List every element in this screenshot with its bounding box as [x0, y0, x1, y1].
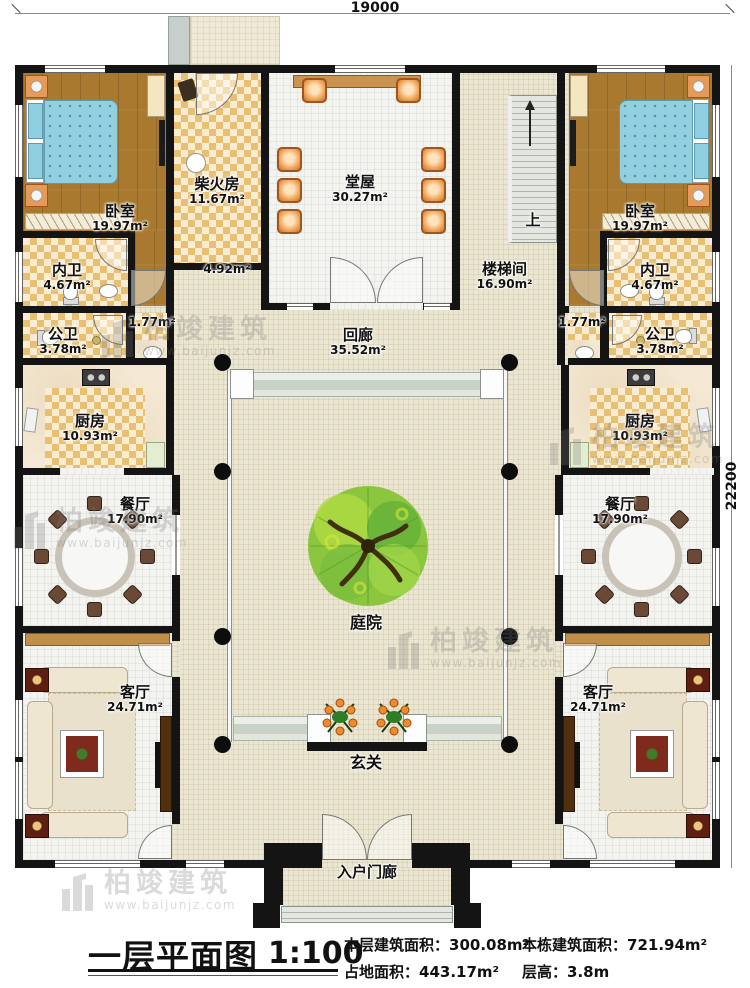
dining-chair [34, 549, 49, 564]
room-label-courtyard: 庭院 [330, 614, 402, 632]
wall [261, 65, 269, 310]
column [214, 628, 231, 645]
door-opening [330, 303, 423, 310]
entrance-steps [281, 906, 453, 923]
chimney [168, 16, 190, 65]
end-table [686, 668, 710, 692]
column [214, 354, 231, 371]
hall-chair [277, 209, 302, 234]
room-label-wash-left: 1.77m² [122, 316, 182, 329]
room-label-foyer: 玄关 [330, 754, 402, 772]
courtyard-planter-top [233, 372, 501, 397]
stat-storey-height: 层高：3.8m [522, 961, 609, 982]
sliding-door [555, 515, 563, 575]
window [335, 65, 405, 73]
column [214, 463, 231, 480]
window [712, 388, 720, 446]
dining-chair [687, 549, 702, 564]
room-label-firewood: 柴火房11.67m² [172, 176, 262, 206]
wall [23, 358, 167, 365]
room-label-public-bath-left: 公卫3.78m² [28, 326, 98, 356]
stat-building-area: 本栋建筑面积：721.94m² [522, 934, 707, 955]
end-table [686, 814, 710, 838]
courtyard-post [480, 369, 504, 399]
room-label-corridor: 回廊35.52m² [320, 327, 396, 357]
room-label-inner-bath-right: 内卫4.67m² [620, 262, 690, 292]
room-label-dining-left: 餐厅17.90m² [100, 496, 170, 526]
window [15, 388, 23, 446]
window [712, 762, 720, 819]
fridge [146, 442, 165, 468]
sofa [607, 812, 695, 838]
hall-chair [421, 209, 446, 234]
courtyard-tree [302, 480, 434, 612]
room-label-dining-right: 餐厅17.90m² [585, 496, 655, 526]
hall-chair [421, 178, 446, 203]
fridge [570, 442, 589, 468]
wall [568, 358, 712, 365]
tv [159, 120, 165, 166]
room-label-inner-bath-left: 内卫4.67m² [32, 262, 102, 292]
dimension-top-value: 19000 [340, 0, 410, 16]
potted-plant [322, 696, 358, 738]
window [287, 303, 313, 310]
end-table [25, 814, 49, 838]
room-label-living-left: 客厅24.71m² [100, 684, 170, 714]
room-label-passage: 4.92m² [192, 263, 262, 276]
tv [575, 742, 580, 788]
pillow [28, 143, 43, 179]
watermark-logo-icon [60, 871, 96, 913]
door-opening [555, 824, 563, 860]
stove [82, 369, 110, 386]
stat-footprint-area: 占地面积：443.17m² [344, 961, 499, 982]
dining-chair [634, 602, 649, 617]
window [45, 65, 105, 73]
window [15, 700, 23, 757]
pillow [28, 103, 43, 139]
step-pier [454, 903, 481, 928]
dining-table [602, 517, 682, 597]
wall [23, 626, 178, 633]
room-label-bedroom-right: 卧室19.97m² [600, 203, 680, 233]
wall [557, 626, 712, 633]
door-opening [172, 641, 180, 677]
room-label-kitchen-right: 厨房10.93m² [605, 413, 675, 443]
sofa [682, 701, 708, 809]
coffee-table-top [636, 736, 668, 772]
dimension-tick [725, 4, 734, 13]
window [55, 860, 140, 868]
courtyard-post [230, 369, 254, 399]
window [590, 860, 675, 868]
outdoor-pad [190, 16, 280, 65]
title-underline [88, 969, 338, 972]
door-opening [60, 468, 124, 475]
window [424, 303, 450, 310]
stairs-direction-arrow [522, 98, 538, 148]
window [712, 700, 720, 757]
sofa [27, 701, 53, 809]
watermark: 柏竣建筑www.baijunjz.com [60, 870, 236, 914]
pillow [694, 143, 709, 179]
room-label-bedroom-left: 卧室19.97m² [80, 203, 160, 233]
title-underline-thin [88, 975, 338, 976]
door-opening [135, 306, 166, 313]
window [597, 65, 665, 73]
room-label-living-right: 客厅24.71m² [563, 684, 633, 714]
pillow [694, 103, 709, 139]
room-label-kitchen-left: 厨房10.93m² [55, 413, 125, 443]
dining-table [55, 517, 135, 597]
foyer-threshold [307, 742, 427, 751]
tv [155, 742, 160, 788]
window [15, 762, 23, 819]
nightstand [25, 75, 48, 98]
stove [627, 369, 655, 386]
room-label-public-bath-right: 公卫3.78m² [625, 326, 695, 356]
column [501, 463, 518, 480]
tv [570, 120, 576, 166]
tv-cabinet [160, 716, 172, 812]
window [15, 105, 23, 177]
hall-chair [302, 78, 327, 103]
hall-chair [421, 147, 446, 172]
courtyard-rail-left [227, 370, 232, 742]
window [15, 548, 23, 606]
column [501, 354, 518, 371]
mattress [619, 100, 693, 184]
end-table [25, 668, 49, 692]
window [712, 548, 720, 606]
hall-chair [396, 78, 421, 103]
dimension-right-value: 22200 [724, 456, 740, 516]
column [214, 736, 231, 753]
nightstand [25, 184, 48, 207]
window [712, 105, 720, 177]
courtyard-rail-right [503, 370, 508, 742]
stat-floor-area: 本层建筑面积：300.08m² [344, 934, 529, 955]
floor-plan: 19000 22200 [0, 0, 750, 988]
potted-plant [376, 696, 412, 738]
step-pier [253, 903, 280, 928]
dresser [147, 75, 165, 117]
room-label-hall: 堂屋30.27m² [315, 174, 405, 204]
room-label-porch: 入户门廊 [312, 864, 422, 881]
window [15, 252, 23, 302]
room-label-stairwell: 楼梯间16.90m² [452, 261, 557, 291]
dining-chair [87, 602, 102, 617]
sliding-door [172, 515, 180, 575]
room-label-wash-right: 1.77m² [552, 316, 612, 329]
door-opening [650, 468, 714, 475]
wall [557, 65, 565, 313]
door-opening [172, 824, 180, 860]
dining-chair [140, 549, 155, 564]
basin [186, 153, 206, 173]
window [512, 860, 550, 868]
column [501, 628, 518, 645]
mattress [44, 100, 118, 184]
nightstand [687, 75, 710, 98]
dining-chair [581, 549, 596, 564]
porch-wall [264, 843, 283, 905]
hall-chair [277, 178, 302, 203]
window [712, 252, 720, 302]
column [501, 736, 518, 753]
courtyard-planter-bottom-left [233, 716, 309, 741]
porch-wall [451, 843, 470, 905]
door-opening [569, 306, 600, 313]
sofa [40, 812, 128, 838]
window [186, 860, 224, 868]
courtyard-planter-bottom-right [426, 716, 502, 741]
dresser [570, 75, 588, 117]
door-opening [555, 641, 563, 677]
nightstand [687, 184, 710, 207]
dimension-tick [11, 4, 20, 13]
hall-chair [277, 147, 302, 172]
tv-cabinet [563, 716, 575, 812]
coffee-table-top [66, 736, 98, 772]
stairs-up-label: 上 [515, 212, 551, 229]
wall [561, 365, 569, 475]
wall [166, 365, 174, 475]
